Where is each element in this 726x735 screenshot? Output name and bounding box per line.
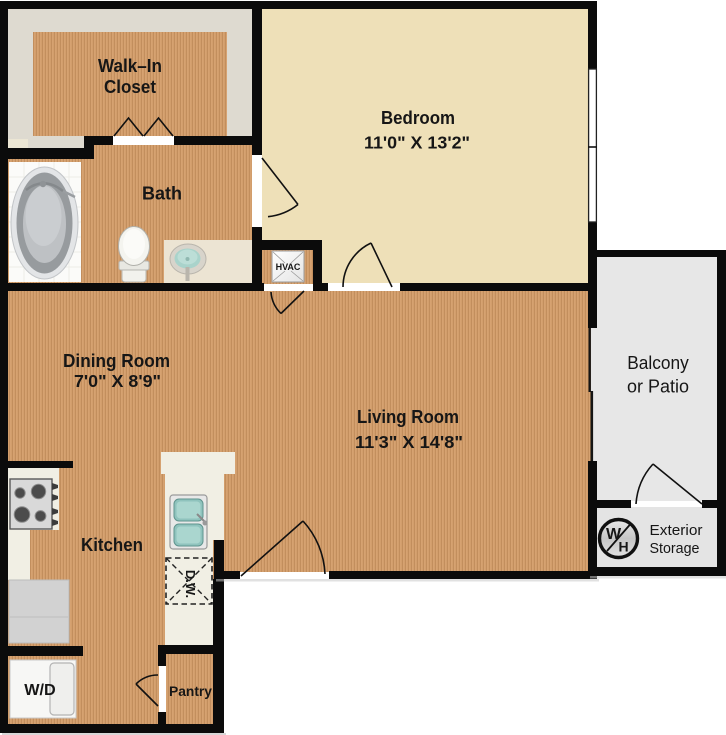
- svg-text:11'3" X 14'8": 11'3" X 14'8": [355, 432, 463, 452]
- svg-text:Closet: Closet: [104, 77, 156, 97]
- svg-text:Walk–In: Walk–In: [98, 56, 162, 76]
- svg-text:Kitchen: Kitchen: [81, 535, 143, 555]
- svg-text:Bath: Bath: [142, 184, 182, 204]
- svg-text:HVAC: HVAC: [276, 262, 301, 272]
- svg-text:D.W.: D.W.: [183, 570, 198, 598]
- svg-text:Dining Room: Dining Room: [63, 351, 170, 371]
- svg-text:or Patio: or Patio: [627, 377, 689, 397]
- svg-text:Living Room: Living Room: [357, 407, 459, 427]
- svg-text:11'0" X 13'2": 11'0" X 13'2": [364, 133, 470, 153]
- svg-text:7'0" X 8'9": 7'0" X 8'9": [74, 371, 161, 391]
- svg-text:Bedroom: Bedroom: [381, 108, 455, 128]
- svg-text:W/D: W/D: [24, 682, 56, 699]
- svg-text:Balcony: Balcony: [627, 353, 689, 373]
- svg-text:H: H: [618, 539, 628, 555]
- svg-text:Exterior: Exterior: [650, 522, 703, 539]
- svg-text:Storage: Storage: [650, 540, 700, 557]
- svg-text:Pantry: Pantry: [169, 684, 212, 699]
